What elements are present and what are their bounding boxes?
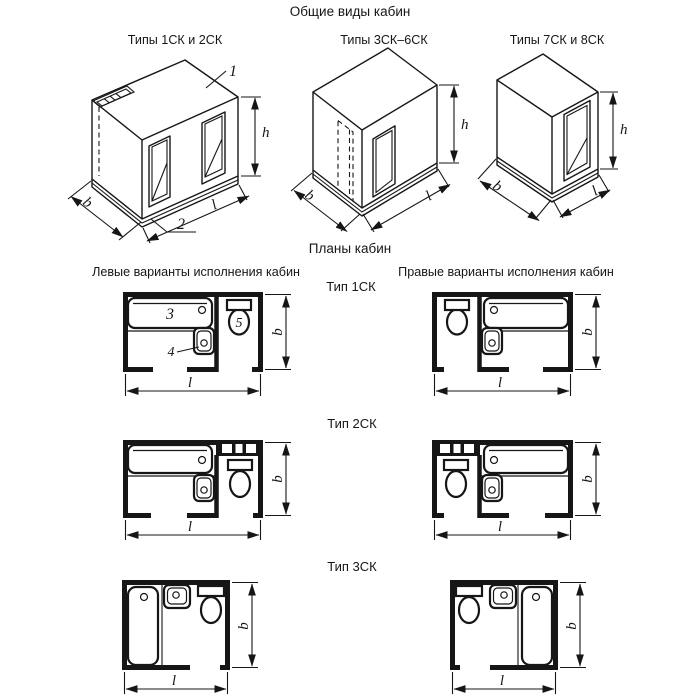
bathtub bbox=[480, 445, 571, 476]
callout-2-leader bbox=[151, 219, 196, 232]
iso-view-types-1-2: 1 2 h b l bbox=[68, 60, 270, 243]
dim-label-l: l bbox=[188, 375, 192, 391]
plan-1sk-left: 3 4 5 b l bbox=[123, 292, 291, 396]
sink bbox=[482, 328, 502, 354]
door-opening bbox=[373, 126, 395, 197]
toilet bbox=[444, 460, 468, 497]
iso-label-type-7-8: Типы 7СК и 8СК bbox=[510, 33, 605, 47]
dim-label-h: h bbox=[620, 122, 628, 138]
sink bbox=[482, 475, 502, 501]
dim-label-l: l bbox=[172, 673, 176, 689]
door-leaf bbox=[149, 136, 170, 207]
iso-view-types-7-8: h b l bbox=[478, 54, 628, 221]
door-leaf bbox=[202, 112, 225, 184]
plan-3sk-right: b l bbox=[450, 580, 586, 694]
type-label-1sk: Тип 1СК bbox=[326, 279, 376, 294]
sink bbox=[490, 585, 516, 608]
dim-label-b: b bbox=[580, 475, 596, 483]
dim-label-l: l bbox=[500, 673, 504, 689]
dim-label-l: l bbox=[498, 519, 502, 535]
technical-drawing-page: Общие виды кабин Типы 1СК и 2СК Типы 3СК… bbox=[0, 0, 700, 700]
callout-number-3: 3 bbox=[165, 306, 174, 323]
toilet bbox=[456, 586, 482, 623]
dim-label-b: b bbox=[236, 622, 252, 630]
bathtub bbox=[128, 587, 158, 665]
dim-label-b: b bbox=[564, 622, 580, 630]
iso-label-type-3-6: Типы 3СК–6СК bbox=[340, 33, 428, 47]
plans-heading: Планы кабин bbox=[309, 241, 391, 256]
sink bbox=[194, 475, 214, 501]
vent-duct-block bbox=[216, 440, 263, 456]
type-label-3sk: Тип 3СК bbox=[327, 559, 377, 574]
callout-1-leader bbox=[206, 71, 226, 88]
plan-2sk-left: b l bbox=[123, 440, 291, 540]
dim-label-l: l bbox=[209, 197, 219, 213]
dim-label-b: b bbox=[270, 328, 286, 336]
plan-2sk-right: b l bbox=[432, 440, 601, 540]
plan-1sk-right: b l bbox=[432, 292, 601, 396]
dim-label-l: l bbox=[589, 183, 600, 199]
type-label-2sk: Тип 2СК bbox=[327, 416, 377, 431]
door-dashed bbox=[338, 121, 353, 202]
toilet bbox=[198, 586, 224, 623]
dim-label-b: b bbox=[490, 178, 506, 196]
bathtub bbox=[480, 298, 571, 331]
toilet bbox=[228, 460, 252, 497]
iso-view-types-3-6: h b l bbox=[291, 48, 469, 232]
callout-number-5: 5 bbox=[236, 316, 243, 331]
bathtub bbox=[522, 587, 552, 665]
dim-label-l: l bbox=[423, 189, 435, 205]
door-opening bbox=[564, 101, 590, 182]
dim-label-l: l bbox=[188, 519, 192, 535]
dim-label-h: h bbox=[461, 117, 469, 133]
bathtub bbox=[126, 445, 217, 476]
iso-label-type-1-2: Типы 1СК и 2СК bbox=[128, 33, 223, 47]
plan-3sk-left: b l bbox=[122, 580, 258, 694]
page-title: Общие виды кабин bbox=[290, 4, 411, 19]
sink bbox=[164, 585, 190, 608]
callout-number-4: 4 bbox=[168, 345, 175, 360]
diagram-svg: Общие виды кабин Типы 1СК и 2СК Типы 3СК… bbox=[0, 0, 700, 700]
toilet bbox=[445, 300, 469, 335]
dim-label-b: b bbox=[580, 328, 596, 336]
dim-label-b: b bbox=[270, 475, 286, 483]
callout-number-1: 1 bbox=[229, 63, 237, 80]
dim-label-l: l bbox=[498, 375, 502, 391]
left-variants-heading: Левые варианты исполнения кабин bbox=[92, 265, 300, 279]
sink bbox=[194, 328, 214, 354]
vent-duct-block bbox=[433, 440, 480, 456]
dim-label-h: h bbox=[262, 125, 270, 141]
right-variants-heading: Правые варианты исполнения кабин bbox=[398, 265, 614, 279]
